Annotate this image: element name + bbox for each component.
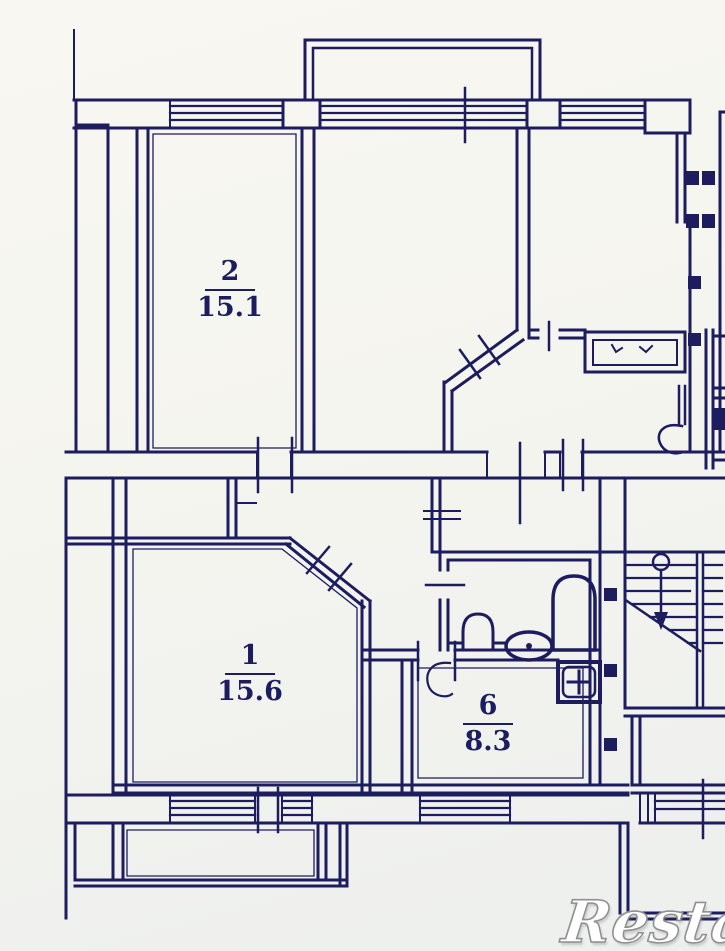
washbasin-cross-icon bbox=[568, 671, 590, 693]
room-6-label: 6 8.3 bbox=[446, 692, 530, 757]
right-room-walls bbox=[529, 322, 685, 453]
toilet bbox=[451, 614, 505, 650]
vent-block bbox=[702, 214, 715, 228]
vent-block bbox=[688, 276, 701, 289]
middle-room-walls bbox=[444, 128, 529, 452]
lower-corridor bbox=[604, 550, 625, 751]
floor-plan-page: 2 15.1 1 15.6 6 8.3 Restate bbox=[0, 0, 725, 951]
cut-off-fixture bbox=[714, 408, 725, 430]
vent-block bbox=[604, 738, 617, 751]
left-walls bbox=[76, 100, 108, 452]
vent-block bbox=[702, 171, 715, 185]
room-2-number: 2 bbox=[221, 258, 240, 286]
vent-block bbox=[686, 214, 699, 228]
room-6-area: 8.3 bbox=[465, 728, 512, 756]
floor-plan-drawing bbox=[0, 0, 725, 951]
room-2-label: 2 15.1 bbox=[188, 258, 272, 323]
vent-block bbox=[686, 171, 699, 185]
stair-break-line bbox=[627, 601, 700, 651]
door-ticks bbox=[424, 511, 460, 519]
sink-drain bbox=[526, 643, 532, 649]
fraction-bar bbox=[225, 673, 275, 675]
stair-arrow-origin bbox=[653, 554, 669, 570]
bottom-balcony bbox=[75, 823, 347, 886]
vent-block bbox=[688, 333, 701, 346]
room-1-number: 1 bbox=[241, 642, 260, 670]
watermark: Restate bbox=[559, 888, 725, 951]
room-1-label: 1 15.6 bbox=[208, 642, 292, 707]
room-2-area: 15.1 bbox=[197, 294, 263, 322]
door-jamb-ticks bbox=[258, 438, 583, 492]
room-6-number: 6 bbox=[479, 692, 498, 720]
top-balcony bbox=[305, 40, 540, 100]
door-swing-icon bbox=[659, 425, 683, 453]
fraction-bar bbox=[463, 723, 513, 725]
staircase bbox=[625, 552, 725, 716]
room-1-area: 15.6 bbox=[217, 678, 283, 706]
fraction-bar bbox=[205, 289, 255, 291]
wardrobe-hook-icon bbox=[640, 346, 652, 352]
wardrobe-hook-icon bbox=[612, 345, 622, 352]
vent-block bbox=[604, 664, 617, 677]
vent-block bbox=[604, 588, 617, 601]
